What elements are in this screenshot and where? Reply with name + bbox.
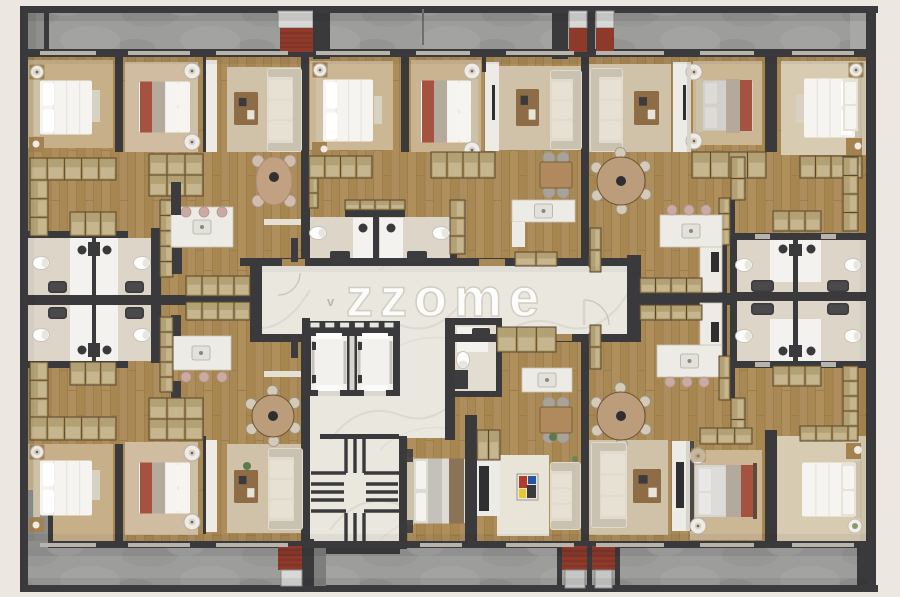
svg-text:zzome: zzome [346,268,546,328]
svg-text:v: v [327,294,335,309]
